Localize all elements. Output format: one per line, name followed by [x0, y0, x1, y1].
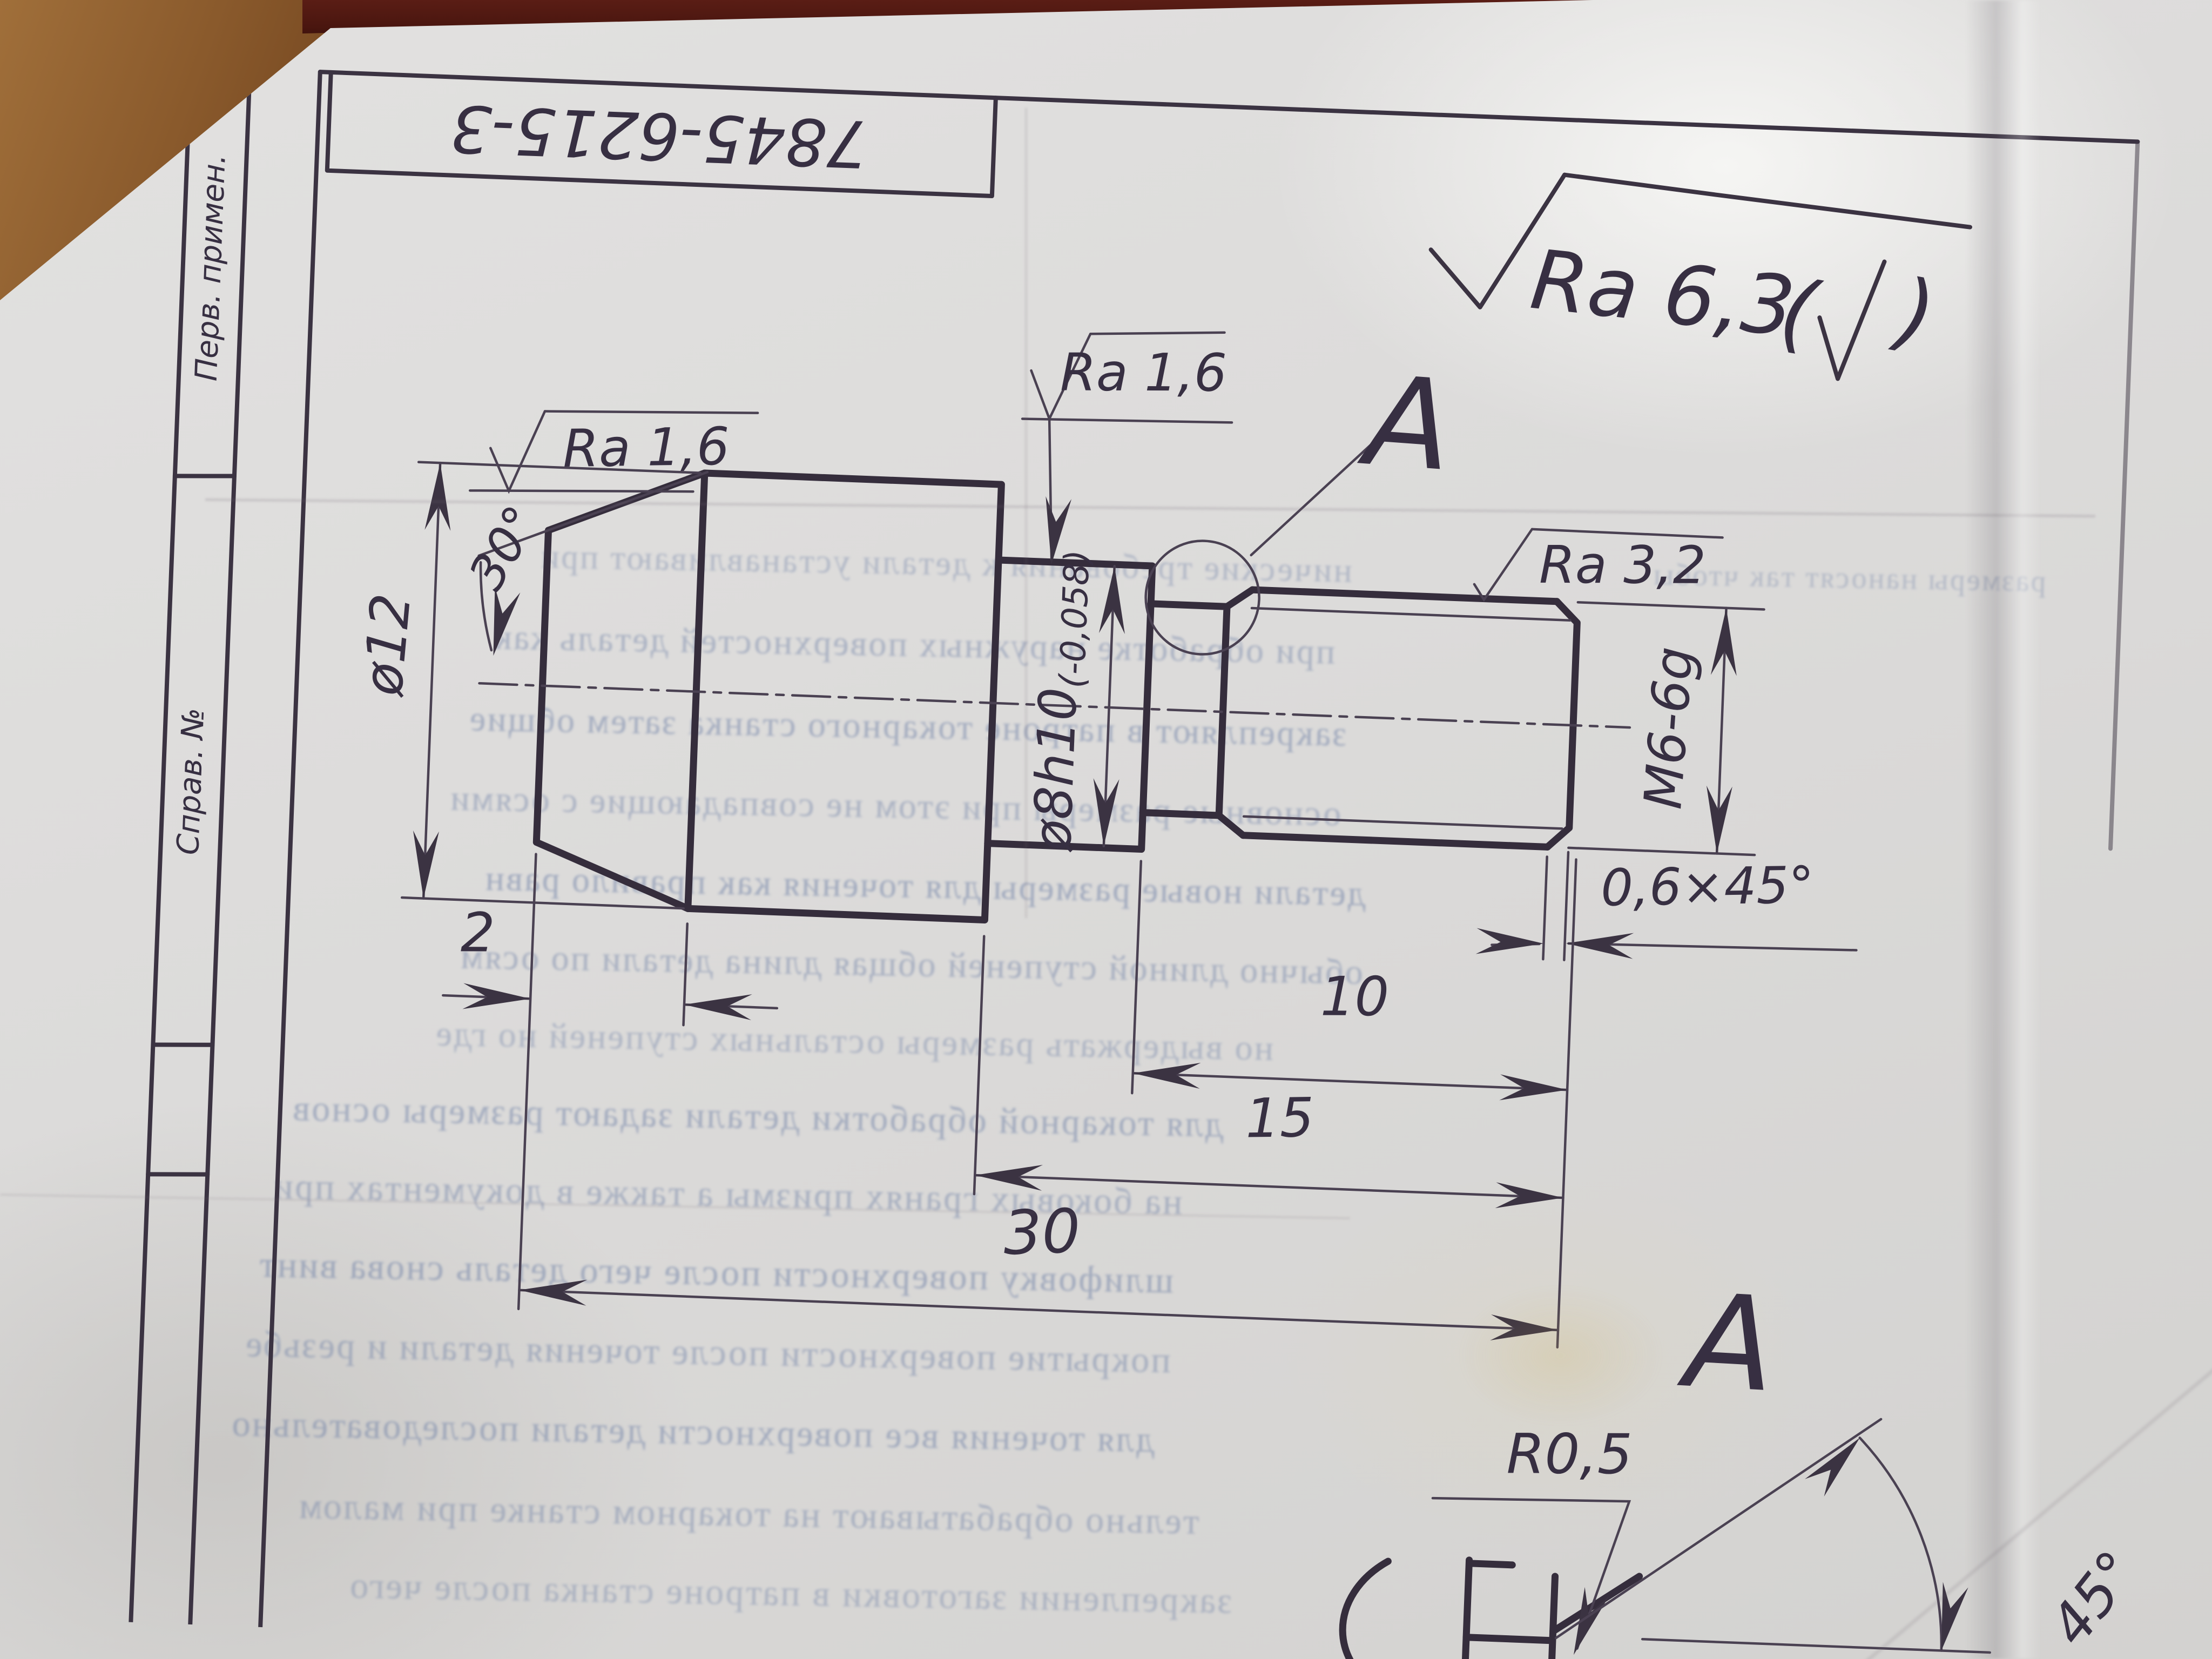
- step-length-value: 15: [1245, 1091, 1314, 1146]
- sheet-frame: [131, 67, 2137, 1659]
- drawing-linework: [0, 0, 2212, 1659]
- photo-scene: нические требования к детали устанавлива…: [0, 0, 2212, 1659]
- neck-diameter-value: ø8h10(-0,058): [1026, 548, 1089, 852]
- neck-diameter-tolerance: (-0,058): [1055, 549, 1095, 689]
- detail-view-a: [1340, 1399, 1999, 1659]
- roughness-cylinder-value: Ra 1,6: [1060, 347, 1227, 399]
- drawing-layer: нические требования к детали устанавлива…: [0, 0, 2212, 1659]
- cone-length-value: 2: [461, 906, 495, 960]
- roughness-thread-value: Ra 3,2: [1539, 539, 1706, 591]
- margin-label-primary-use: Перв. примен.: [192, 153, 231, 381]
- detail-callout-circle: [1144, 433, 1375, 661]
- length-dimensions: [518, 820, 1576, 1347]
- total-length-value: 30: [1002, 1201, 1081, 1264]
- neck-diameter-main: ø8h10: [1022, 686, 1089, 852]
- stamp-number: 7845-6215-3: [449, 95, 869, 176]
- paper-sheet: нические требования к детали устанавлива…: [0, 0, 2212, 1659]
- roughness-cone-value: Ra 1,6: [563, 421, 730, 475]
- margin-label-ref-number: Справ. №: [173, 707, 209, 855]
- detail-label-a: A: [1683, 1276, 1778, 1411]
- thread-length-value: 10: [1320, 970, 1390, 1024]
- chamfer-value: 0,6×45°: [1601, 860, 1815, 914]
- section-label-a: A: [1362, 360, 1456, 490]
- diameter12-value: ø12: [356, 591, 419, 698]
- groove-radius-value: R0,5: [1506, 1427, 1632, 1482]
- thread-spec-value: M6-6g: [1637, 645, 1701, 811]
